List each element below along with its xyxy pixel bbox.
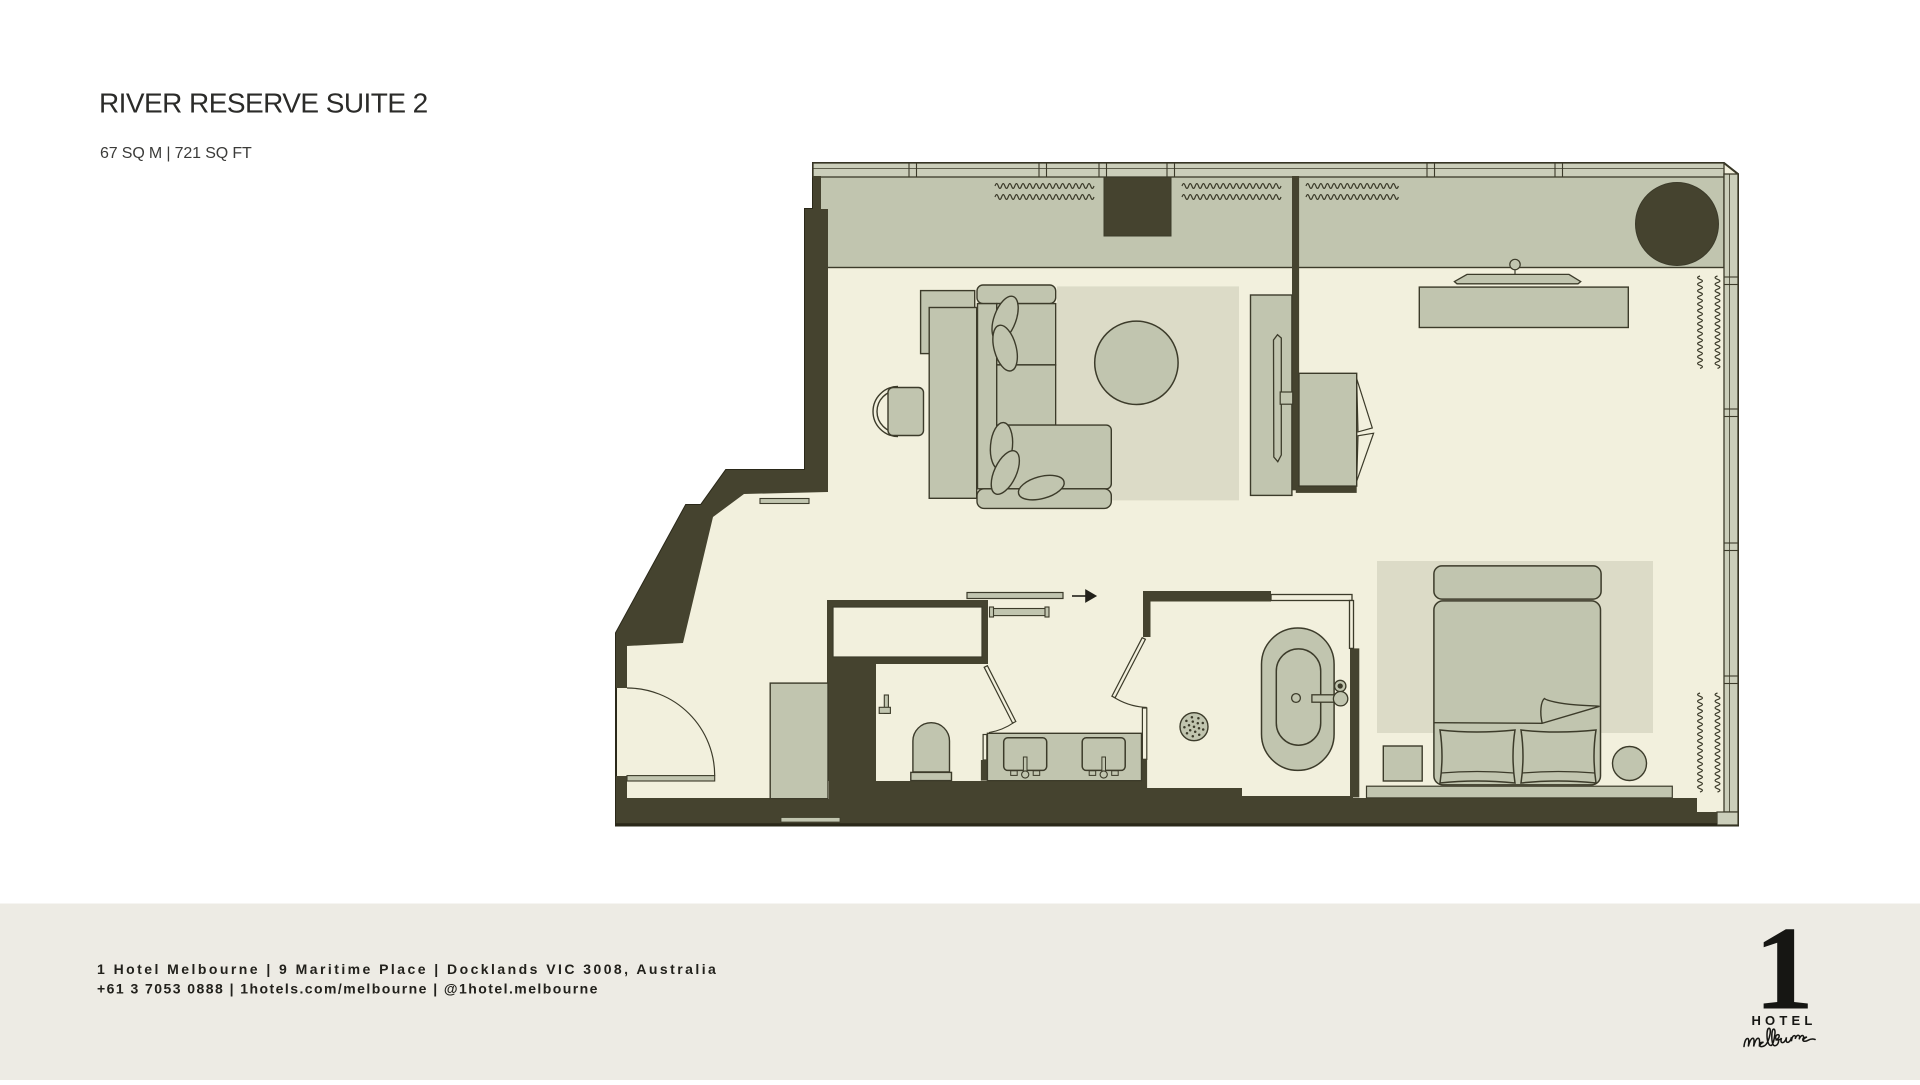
svg-text:67 SQ M | 721 SQ FT: 67 SQ M | 721 SQ FT	[100, 145, 252, 162]
svg-text:RIVER RESERVE SUITE 2: RIVER RESERVE SUITE 2	[99, 88, 428, 119]
svg-text:1 Hotel Melbourne | 9 Maritime: 1 Hotel Melbourne | 9 Maritime Place | D…	[97, 961, 718, 977]
svg-text:HOTEL: HOTEL	[1751, 1013, 1816, 1028]
svg-text:+61 3 7053 0888 | 1hotels.com/: +61 3 7053 0888 | 1hotels.com/melbourne …	[97, 980, 599, 996]
